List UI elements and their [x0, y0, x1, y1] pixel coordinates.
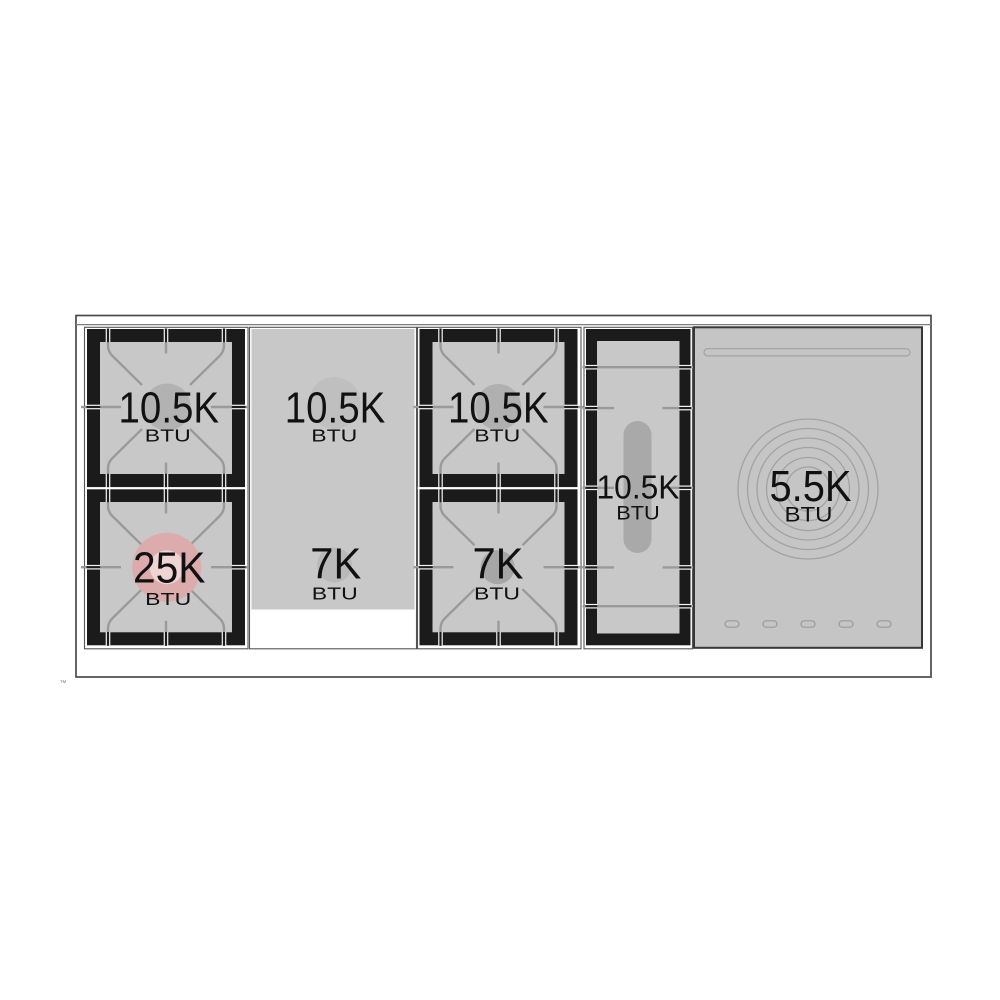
svg-text:10.5K: 10.5K [597, 469, 680, 506]
svg-text:BTU: BTU [311, 426, 357, 446]
svg-text:25K: 25K [133, 544, 206, 593]
svg-text:BTU: BTU [474, 584, 520, 604]
svg-text:BTU: BTU [474, 426, 520, 446]
svg-text:BTU: BTU [785, 503, 833, 526]
svg-text:BTU: BTU [616, 504, 660, 525]
svg-text:7K: 7K [310, 539, 361, 588]
svg-text:BTU: BTU [312, 584, 358, 604]
svg-text:BTU: BTU [145, 589, 191, 609]
svg-text:™: ™ [60, 680, 67, 687]
svg-text:7K: 7K [473, 539, 524, 588]
svg-text:BTU: BTU [145, 426, 191, 446]
